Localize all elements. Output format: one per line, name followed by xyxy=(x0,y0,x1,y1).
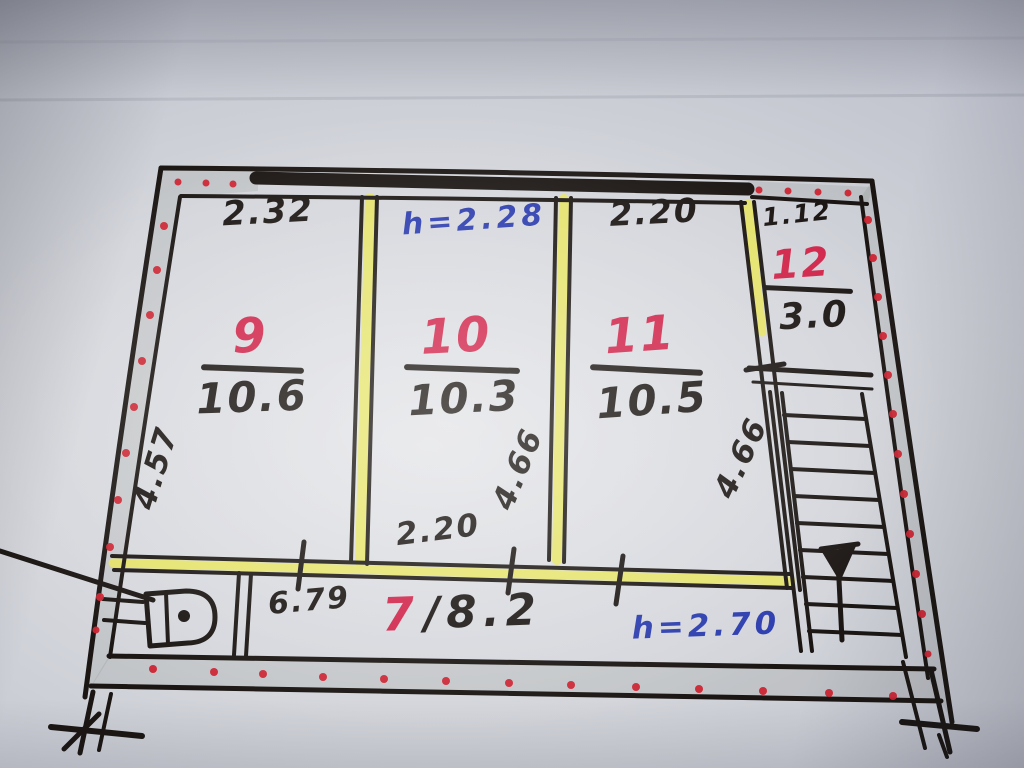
corridor-area: /8.2 xyxy=(423,584,543,639)
corridor-number: 7 xyxy=(381,587,417,642)
corridor-ceiling-height-note: h=2.70 xyxy=(631,605,781,646)
door-knob-dot xyxy=(178,610,190,622)
room-11-width-dim: 2.20 xyxy=(608,190,699,234)
room-9-width-dim: 2.32 xyxy=(221,190,315,235)
room-9-number: 9 xyxy=(231,307,268,364)
corridor-width-dim: 6.79 xyxy=(267,580,352,622)
room-12-number: 12 xyxy=(770,239,833,289)
corridor-number-area: 7 /8.2 xyxy=(381,582,543,642)
floor-plan-photo: 2.32 h=2.28 2.20 1.12 9 10.6 10 10.3 11 … xyxy=(0,0,1024,768)
room-9-area: 10.6 xyxy=(195,371,308,424)
room-11-area: 10.5 xyxy=(595,372,710,429)
room-11-number: 11 xyxy=(603,305,678,366)
room-10-number: 10 xyxy=(419,306,493,366)
room-10-area: 10.3 xyxy=(407,371,521,426)
entrance-door-symbol xyxy=(103,591,215,646)
paper-creases xyxy=(0,38,1024,100)
room-12-area: 3.0 xyxy=(778,294,850,339)
